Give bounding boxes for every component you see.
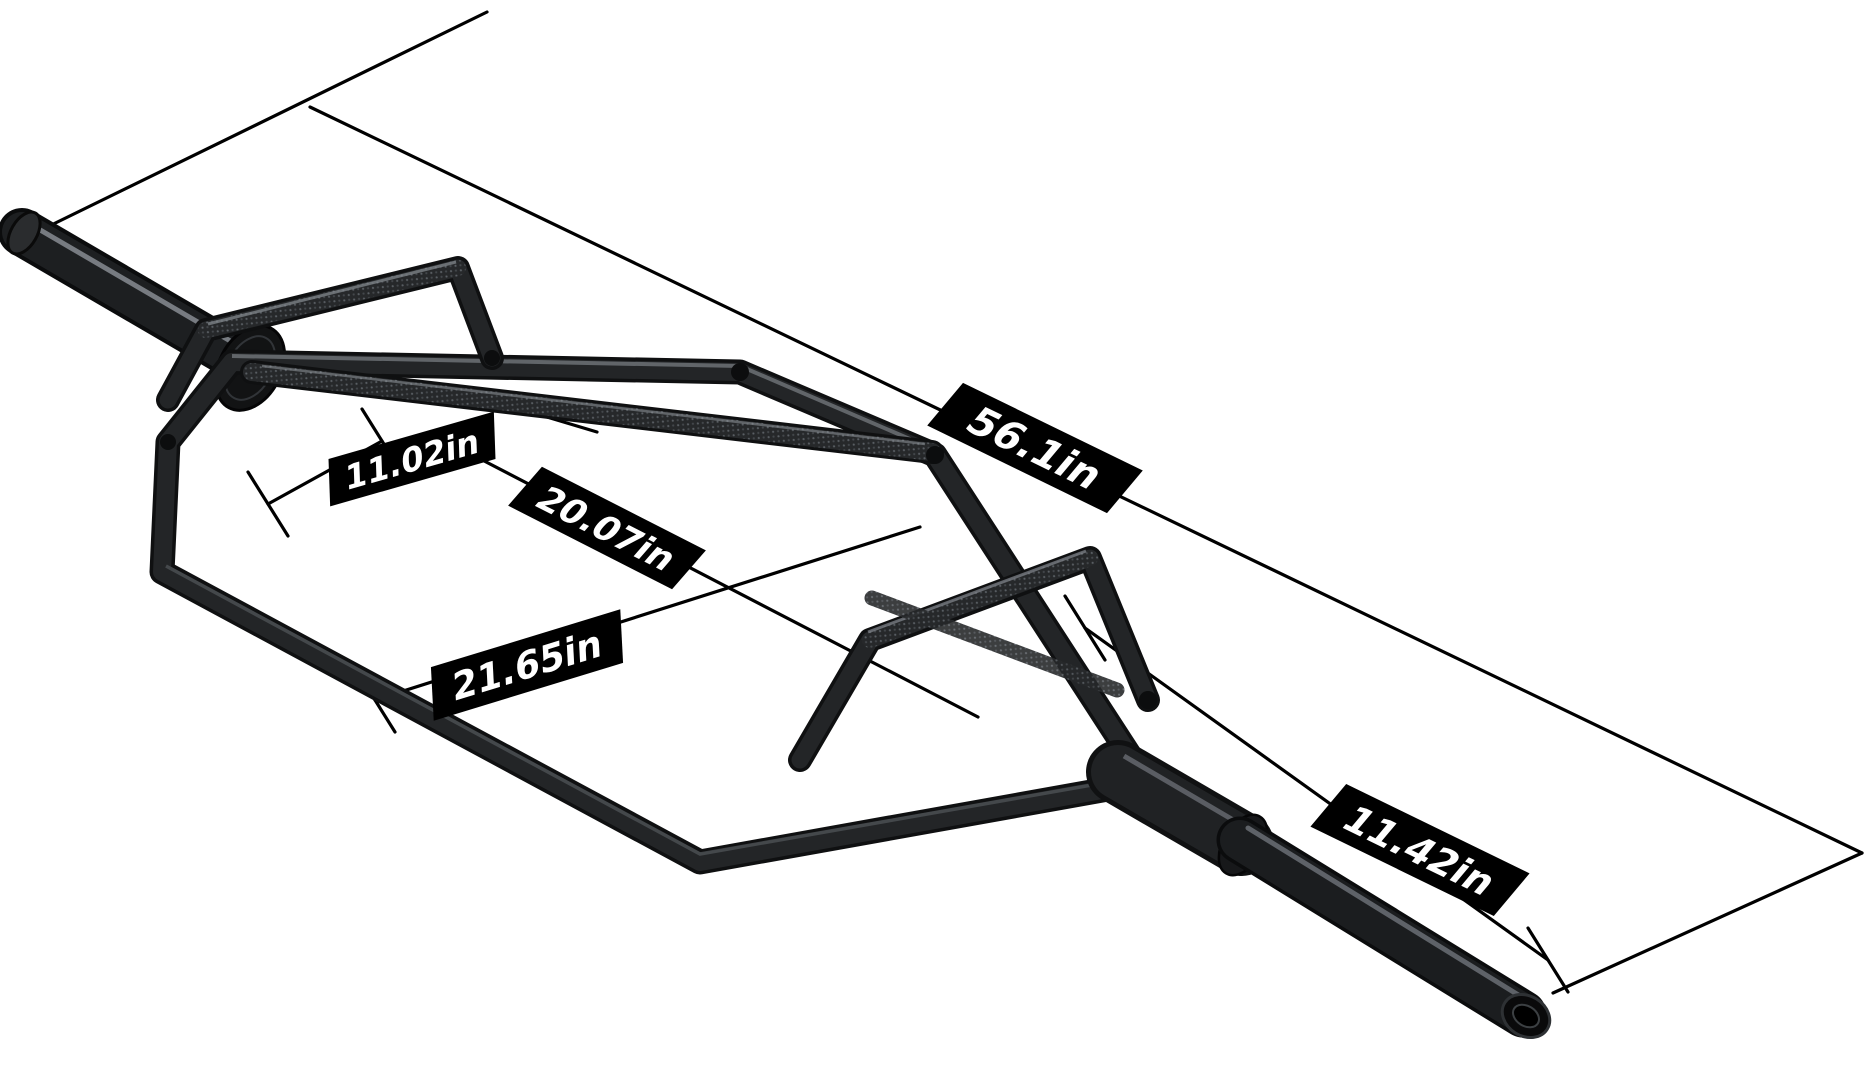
figure-background [0,0,1875,1080]
weld-joint [484,350,500,366]
weld-joint [731,363,749,381]
weld-joint [926,446,944,464]
hex-trap-bar-figure: 56.1in 11.02in 20.07in 21.65in 11.42in [0,0,1875,1080]
product-dimension-diagram: 56.1in 11.02in 20.07in 21.65in 11.42in [0,0,1875,1080]
weld-joint [160,434,176,450]
weld-joint [1139,691,1157,709]
